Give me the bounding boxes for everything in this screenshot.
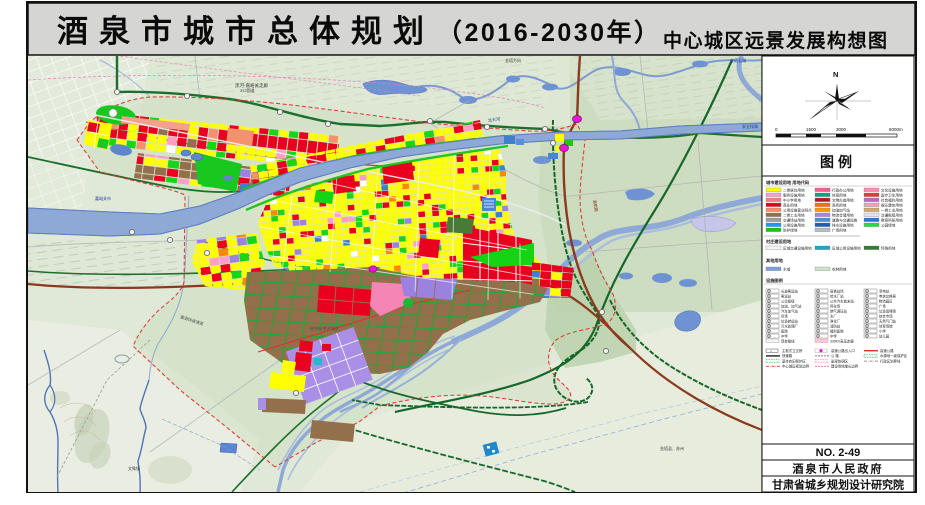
svg-text:酒泉市人民政府: 酒泉市人民政府: [793, 462, 884, 476]
svg-text:快速路: 快速路: [782, 353, 793, 358]
svg-text:道路与交通设施: 道路与交通设施: [832, 217, 858, 222]
svg-text:福利医院: 福利医院: [830, 328, 844, 333]
svg-text:医院: 医院: [781, 328, 788, 333]
svg-text:公共汽车首末站: 公共汽车首末站: [830, 298, 854, 303]
svg-text:基本农田保护区: 基本农田保护区: [782, 358, 806, 363]
svg-text:主枢式立交桥: 主枢式立交桥: [782, 348, 803, 353]
svg-text:排水设施用地: 排水设施用地: [832, 222, 854, 227]
svg-text:金塔县、苏州: 金塔县、苏州: [660, 445, 684, 451]
svg-text:消防站: 消防站: [830, 323, 841, 328]
svg-text:城市建设用地 用地代码: 城市建设用地 用地代码: [766, 179, 810, 186]
svg-text:行政区划界线: 行政区划界线: [880, 358, 901, 363]
svg-text:嘉峪关市: 嘉峪关市: [95, 195, 111, 201]
svg-text:330KV高压走廊: 330KV高压走廊: [830, 338, 854, 343]
svg-text:客运站: 客运站: [781, 293, 792, 298]
svg-text:商务用地: 商务用地: [832, 202, 847, 207]
svg-text:公用设施用地: 公用设施用地: [783, 222, 805, 227]
svg-text:社会福利用地: 社会福利用地: [881, 197, 903, 202]
svg-text:区域交通设施用地: 区域交通设施用地: [783, 245, 812, 250]
svg-text:垃圾填埋场: 垃圾填埋场: [879, 308, 897, 313]
svg-text:现有管线: 现有管线: [781, 338, 795, 343]
svg-text:净化厂: 净化厂: [830, 318, 841, 323]
svg-text:公交枢纽: 公交枢纽: [781, 298, 795, 303]
svg-text:村庄建设用地: 村庄建设用地: [766, 238, 792, 245]
svg-text:经济技术开发区: 经济技术开发区: [310, 325, 339, 332]
svg-text:污水处理厂: 污水处理厂: [781, 323, 799, 328]
svg-text:6000m: 6000m: [889, 127, 903, 132]
svg-text:高铁站场: 高铁站场: [830, 288, 844, 293]
svg-text:金塔县城: 金塔县城: [730, 57, 746, 63]
svg-text:小学: 小学: [879, 328, 886, 333]
svg-text:二类居住用地: 二类居住用地: [783, 187, 805, 192]
svg-text:一类工业用地: 一类工业用地: [881, 207, 903, 212]
svg-text:教育科研用地: 教育科研用地: [881, 217, 903, 222]
svg-text:图例: 图例: [820, 154, 856, 170]
svg-text:行政办公用地: 行政办公用地: [832, 187, 854, 192]
svg-text:公 路: 公 路: [831, 353, 839, 358]
svg-text:中学: 中学: [830, 333, 837, 338]
svg-text:医疗卫生用地: 医疗卫生用地: [881, 192, 903, 197]
svg-text:货场: 货场: [781, 313, 788, 318]
svg-text:水厂: 水厂: [830, 313, 837, 318]
svg-text:交通枢纽用地: 交通枢纽用地: [881, 212, 903, 217]
svg-text:N: N: [833, 70, 838, 79]
svg-text:中小学用地: 中小学用地: [783, 197, 801, 202]
svg-text:中心城区规划边界: 中心城区规划边界: [782, 364, 810, 369]
svg-text:中学: 中学: [781, 333, 788, 338]
svg-text:物流园区: 物流园区: [879, 298, 893, 303]
svg-text:文殊镇: 文殊镇: [128, 465, 140, 471]
svg-text:金塔方向: 金塔方向: [505, 57, 521, 63]
svg-text:广场: 广场: [879, 303, 886, 308]
svg-text:停车场: 停车场: [830, 303, 841, 308]
svg-text:交通场站用地: 交通场站用地: [783, 217, 805, 222]
svg-text:高速公路出入口: 高速公路出入口: [831, 348, 855, 353]
svg-text:幼儿园: 幼儿园: [879, 333, 890, 338]
svg-text:高速公路: 高速公路: [880, 348, 894, 353]
svg-text:电信交换局: 电信交换局: [879, 293, 897, 298]
svg-text:综合市场: 综合市场: [879, 313, 893, 318]
svg-text:水域: 水域: [783, 266, 791, 271]
svg-text:物流仓储用地: 物流仓储用地: [832, 212, 854, 217]
svg-text:（2016-2030年）: （2016-2030年）: [437, 18, 662, 47]
svg-text:汽车加气站: 汽车加气站: [781, 308, 799, 313]
svg-text:体育用地: 体育用地: [832, 192, 847, 197]
svg-text:II: II: [770, 349, 772, 353]
svg-text:设施图例: 设施图例: [766, 277, 783, 284]
svg-text:体育场馆: 体育场馆: [879, 323, 893, 328]
svg-text:公园绿地: 公园绿地: [881, 222, 896, 227]
svg-text:农林用地: 农林用地: [832, 266, 847, 271]
svg-text:水源地一级保护区: 水源地一级保护区: [880, 353, 908, 358]
svg-text:长途客运站: 长途客运站: [781, 288, 799, 293]
svg-text:加油加气站: 加油加气站: [832, 207, 850, 212]
svg-text:建设用地增长边界: 建设用地增长边界: [831, 364, 859, 369]
svg-text:景观协调区: 景观协调区: [831, 358, 849, 363]
svg-text:服务设施用地: 服务设施用地: [783, 192, 805, 197]
svg-text:3000: 3000: [836, 127, 847, 132]
svg-text:中心城区远景发展构想图: 中心城区远景发展构想图: [663, 29, 889, 52]
svg-text:1500: 1500: [806, 127, 817, 132]
svg-text:特殊用地: 特殊用地: [881, 245, 896, 250]
svg-text:甘肃省城乡规划设计研究院: 甘肃省城乡规划设计研究院: [772, 478, 904, 492]
svg-text:商业用地: 商业用地: [783, 202, 798, 207]
svg-text:文物古迹用地: 文物古迹用地: [832, 197, 854, 202]
svg-text:312国道: 312国道: [240, 87, 255, 93]
svg-text:给水厂站: 给水厂站: [830, 293, 844, 298]
svg-text:广场用地: 广场用地: [832, 227, 847, 232]
svg-text:NO. 2-49: NO. 2-49: [816, 447, 861, 459]
svg-text:文化设施用地: 文化设施用地: [881, 187, 903, 192]
svg-text:防护绿地: 防护绿地: [783, 227, 798, 232]
svg-text:酒泉市城市总体规划: 酒泉市城市总体规划: [57, 14, 435, 49]
svg-text:垃圾转运站: 垃圾转运站: [781, 318, 799, 323]
svg-text:加油、加气站: 加油、加气站: [781, 303, 802, 308]
svg-text:娱乐康体用地: 娱乐康体用地: [881, 202, 903, 207]
svg-text:区域公用设施用地: 区域公用设施用地: [832, 245, 861, 250]
svg-text:变电站: 变电站: [879, 288, 890, 293]
svg-text:其他用地: 其他用地: [766, 257, 784, 264]
svg-text:公用设施营业网点: 公用设施营业网点: [783, 207, 812, 212]
svg-text:天然气门站: 天然气门站: [879, 318, 897, 323]
svg-text:安全保障: 安全保障: [742, 123, 758, 129]
svg-text:燃气调压站: 燃气调压站: [830, 308, 848, 313]
svg-text:二类工业用地: 二类工业用地: [783, 212, 805, 217]
